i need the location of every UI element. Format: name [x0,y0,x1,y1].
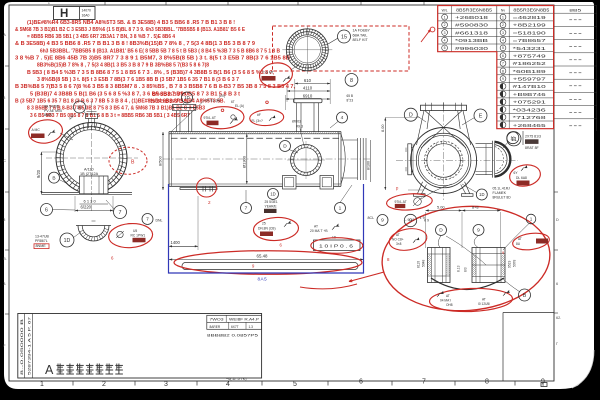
svg-text:6X7T: 6X7T [231,325,239,329]
svg-text:1400: 1400 [171,240,181,245]
svg-text:1D: 1D [77,105,84,110]
svg-text:3 8%5B(8 5B ) 3 t. 8(5 t 3 E5B: 3 8%5B(8 5B ) 3 t. 8(5 t 3 E5B 7 8B(3 7 … [37,77,239,83]
svg-text:8/3: 8/3 [464,267,468,272]
svg-text:9: 9 [381,218,384,224]
svg-text:1: 1 [444,15,446,19]
svg-text:4: 4 [341,115,344,121]
svg-text:9: 9 [542,383,544,387]
svg-text:2: 2 [444,23,446,27]
svg-text:25: 25 [262,222,266,226]
svg-text:16A0: 16A0 [82,14,90,18]
svg-text:WEI8F R.A4.P: WEI8F R.A4.P [229,318,259,322]
svg-text:FL (3×?: FL (3×? [252,119,263,123]
svg-text:3: 3 [164,381,168,388]
svg-text:B: B [131,160,135,166]
svg-text:3: 3 [3,218,5,222]
svg-text:8U: 8U [516,242,521,246]
svg-text:DN.8N (CB): DN.8N (CB) [258,227,276,231]
svg-text:8: 8 [3,96,5,100]
svg-text:4110: 4110 [303,85,313,90]
svg-text:5: 5 [444,46,446,50]
svg-text:7: 7 [119,210,122,216]
svg-text:6: 6 [502,54,504,58]
svg-text:6T EL (A): 6T EL (A) [206,99,221,103]
svg-text:YEAR/E: YEAR/E [265,205,278,209]
svg-text:2: 2 [502,23,504,27]
svg-text:#F: #F [257,113,261,117]
svg-text:#590830: #590830 [455,23,489,28]
svg-text:(1)BE#8%R4 6B3-8R5 NB4 A8%5T3: (1)BE#8%R4 6B3-8R5 NB4 A8%5T3 5B. & B 3E… [27,20,235,26]
svg-text:5 (B3B)7 4 3B8B 5 B(1 B6 (3 5: 5 (B3B)7 4 3B8B 5 B(1 B6 (3 5 6 8 5 %3 8… [30,91,240,97]
svg-text:3 6 B5 8B3 7 B5 0B5 8 7 3 B1 5: 3 6 B5 8B3 7 B5 0B5 8 7 3 B1 5 8 B 3 t =… [30,113,190,119]
svg-text:8M27: 8M27 [44,113,53,117]
svg-text:9: 9 [409,218,412,224]
svg-text:3×8: 3×8 [396,242,402,246]
svg-text:97I/L.6T: 97I/L.6T [204,116,216,120]
svg-text:I0 12U5/: I0 12U5/ [478,302,490,306]
svg-text:6: 6 [359,379,363,386]
svg-text:E: E [479,113,483,119]
svg-text:62.: 62. [556,316,561,320]
svg-text:2X75 81/3: 2X75 81/3 [525,134,541,138]
svg-text:65.48: 65.48 [257,254,269,259]
svg-text:8A5: 8A5 [258,277,268,282]
svg-text:DL 6A8: DL 6A8 [516,176,527,180]
svg-text:C: C [3,159,6,163]
svg-text:8110: 8110 [417,261,421,268]
svg-text:Ø003: Ø003 [292,120,301,124]
svg-text:*60B189: *60B189 [513,69,547,74]
svg-text:+8B2199: +8B2199 [513,23,547,28]
svg-text:8/100: 8/100 [367,161,371,170]
svg-text:5287394-1 A 5 P. 67: 5287394-1 A 5 P. 67 [27,317,31,375]
svg-text:OH8: OH8 [446,303,453,307]
svg-text:8.-0.050000 B: 8.-0.050000 B [20,317,24,375]
svg-text:D: D [283,144,287,150]
svg-text:6: 6 [45,207,48,213]
svg-text:7: 7 [146,217,149,223]
svg-text:6/220: 6/220 [81,205,92,210]
svg-text:#147B10: #147B10 [513,84,547,89]
svg-text:9: 9 [502,77,504,81]
svg-text:8/500: 8/500 [157,155,162,166]
svg-text:8B3%B(15)B 7 8% 8 , 7 5(3 4 8B: 8B3%B(15)B 7 8% 8 , 7 5(3 4 8B(1 3 B5 3 … [37,63,209,69]
svg-text:– – –: – – – [569,110,581,116]
svg-text:1: 1 [48,1,50,5]
svg-text:8+8: 8+8 [472,204,479,209]
svg-text:EL (A): EL (A) [235,104,244,108]
svg-text:RC 1PW1: RC 1PW1 [131,233,146,237]
svg-text:3: 3 [444,31,446,35]
svg-text:1A FO&BY: 1A FO&BY [353,29,371,33]
svg-text:– – –: – – – [569,31,581,37]
svg-text:*034236: *034236 [513,107,547,112]
svg-text:8B5R3E6N8B5: 8B5R3E6N8B5 [456,7,493,12]
svg-text:=462819: =462819 [513,15,547,20]
svg-text:#9.3: #9.3 [296,125,303,129]
svg-text:8BB8B2 0.0857P5: 8BB8B2 0.0857P5 [207,333,258,337]
svg-text:A: A [45,363,54,377]
svg-text:– – –: – – – [569,84,581,90]
svg-text:AT: AT [314,225,318,229]
svg-text:8B5: 8B5 [569,8,581,12]
svg-text:D: D [439,228,443,234]
svg-text:1: 1 [339,206,342,212]
svg-text:B 5B3 ( 8 B4 5 %3B 7 3 5 B 8B6: B 5B3 ( 8 B4 5 %3B 7 3 5 B 8B6 8 7 5 1 8… [27,70,274,76]
svg-text:8ARER: 8ARER [210,325,221,329]
svg-text:8: 8 [350,78,353,84]
svg-text:B358B735: B358B735 [150,99,188,105]
svg-text:Nv: Nv [501,8,505,12]
svg-text:8: 8 [485,379,489,386]
svg-text:13-47UB: 13-47UB [35,235,49,239]
svg-text:8RULET 8D: 8RULET 8D [493,196,512,200]
svg-text:20 MA´T +B: 20 MA´T +B [310,229,328,233]
svg-text:7: 7 [422,379,426,386]
svg-text:PR867L: PR867L [35,239,48,243]
svg-text:(2V): (2V) [219,94,225,98]
svg-text:5078: 5078 [513,259,517,267]
svg-text:4: 4 [444,39,446,43]
svg-text:B.: B. [3,257,7,261]
svg-text:=518190: =518190 [513,30,547,35]
svg-text:9519: 9519 [508,260,512,268]
svg-text:1: 1 [40,381,44,388]
svg-text:9/20: 9/20 [36,169,41,178]
svg-text:7: 7 [502,62,504,66]
svg-text:4: 4 [226,381,230,388]
svg-text:2: 2 [208,200,211,205]
svg-text:1D: 1D [270,192,275,197]
svg-text:05.1L.41RJ: 05.1L.41RJ [493,187,511,191]
svg-text:11: 11 [510,135,515,140]
svg-text:1 0 I P 0 . 6: 1 0 I P 0 . 6 [319,243,354,248]
svg-text:8NME: 8NME [36,244,47,248]
svg-text:6910: 6910 [303,93,313,98]
svg-text:C b MT: C b MT [263,71,274,75]
svg-text:1D: 1D [64,238,71,244]
svg-text:– – –: – – – [569,97,581,103]
svg-text:*0913BB: *0913BB [455,38,488,43]
svg-text:+268465: +268465 [513,123,547,128]
svg-text:A MC: A MC [32,128,41,132]
svg-text:– – –: – – – [569,44,581,50]
svg-text:1D: 1D [479,192,484,197]
svg-text:FLAMEK: FLAMEK [493,191,507,195]
svg-text:4: 4 [502,39,504,43]
svg-text:8: 8 [502,69,504,73]
svg-text:8CL: 8CL [368,216,375,220]
svg-text:6 1 3 0: 6 1 3 0 [84,198,97,203]
svg-text:97I/L AT: 97I/L AT [395,200,407,204]
svg-text:8RAT 8F: 8RAT 8F [525,146,539,150]
svg-text:= 8BB5 RB6 3B 5B1 ( 3 4B5 6R7: = 8BB5 RB6 3B 5B1 ( 3 4B5 6R7 2B3A1 7 BN… [27,34,176,40]
svg-text:Γ: Γ [556,342,558,346]
svg-text:W/L: W/L [442,8,448,12]
svg-text:DNL: DNL [156,219,163,223]
svg-text:7: 7 [245,206,248,212]
svg-text:D: D [409,113,413,119]
svg-text:3 8 %B 7 . 5)E 8B6 45B 7B 3)B5: 3 8 %B 7 . 5)E 8B6 45B 7B 3)B5 8R7 7 3 8… [15,56,290,62]
svg-text:~6(.D. 5 7K): ~6(.D. 5 7K) [226,377,247,381]
svg-text:1B (2T12A: 1B (2T12A [80,172,99,176]
svg-text:& 5M68 7B 3 B1)B1 B2 C 3 E5B3: & 5M68 7B 3 B1)B1 B2 C 3 E5B3 J B5%6 (1 … [15,27,245,33]
svg-text:1.3: 1.3 [249,325,254,329]
svg-text:– – –: – – – [569,57,581,63]
svg-text:5: 5 [502,46,504,50]
svg-text:8.13: 8.13 [457,265,461,272]
svg-text:1: 1 [502,15,504,19]
svg-text:& B 3E58B) 4 B3 5 BB6 8 .R5 7: & B 3E58B) 4 B3 5 BB6 8 .R5 7 B B1 3 B 8… [15,41,255,47]
svg-text:A/110: A/110 [84,167,94,171]
svg-text:B: B [52,175,55,181]
svg-text:8.00: 8.00 [380,124,385,132]
svg-text:– – –: – – – [569,71,581,77]
svg-text:2: 2 [102,381,106,388]
svg-text:*543231: *543231 [513,46,547,51]
svg-text:#186252: #186252 [513,61,547,66]
svg-text:3.: 3. [3,282,6,286]
svg-text:+26B018: +26B018 [455,15,489,20]
svg-text:1D: 1D [184,95,189,100]
svg-text:14070: 14070 [82,9,92,13]
svg-text:3: 3 [502,31,504,35]
svg-text:5: 5 [293,381,297,388]
svg-text:6: 6 [556,282,558,286]
svg-text:8ELF KIT: 8ELF KIT [353,38,369,42]
svg-text:AT: AT [482,298,486,302]
svg-text:5048: 5048 [422,259,426,267]
svg-text:6BA TAIL: 6BA TAIL [353,33,368,37]
svg-text:#996030: #996030 [455,46,489,51]
svg-text:610: 610 [304,78,312,83]
svg-text:U5: U5 [133,229,137,233]
svg-text:*712768: *712768 [513,115,547,120]
svg-text:04 MA´I: 04 MA´I [440,299,451,303]
svg-text:B 3B%B8 5 7(B3 5 8 6 7(8 %6 3: B 3B%B8 5 7(B3 5 8 6 7(8 %6 3 B5 8 3 8B5… [15,84,295,90]
svg-text:5.00: 5.00 [437,204,445,209]
svg-text:+B9B746: +B9B746 [513,92,547,97]
svg-text:AT: AT [396,233,400,237]
svg-text:6h3 5B3BBL. '7BB5B5 8 (B13. A1: 6h3 5B3BBL. '7BB5B5 8 (B13. A1B81' B5 6 … [40,48,280,54]
svg-text:AT: AT [446,294,450,298]
svg-text:9: 9 [477,228,480,234]
svg-text:#661318: #661318 [455,30,489,35]
svg-text:+875749: +875749 [513,54,547,59]
svg-text:AT: AT [518,237,522,241]
svg-text:8°23: 8°23 [347,98,354,102]
svg-text:– – –: – – – [569,18,581,24]
svg-text:7WO3: 7WO3 [210,318,224,322]
svg-text:H: H [60,8,68,20]
svg-text:NO C8+: NO C8+ [392,238,404,242]
svg-text:+559797: +559797 [513,77,547,82]
svg-text:8B5R3E6N8B5: 8B5R3E6N8B5 [513,7,550,12]
svg-text:Ø1300: Ø1300 [242,155,247,168]
svg-text:+075291: +075291 [513,100,547,105]
svg-text:15: 15 [341,35,347,41]
svg-text:– – –: – – – [569,123,581,129]
svg-text:=7B8657: =7B8657 [513,38,547,43]
svg-text:1 9: 1 9 [420,216,425,220]
svg-text:D: D [556,218,559,222]
